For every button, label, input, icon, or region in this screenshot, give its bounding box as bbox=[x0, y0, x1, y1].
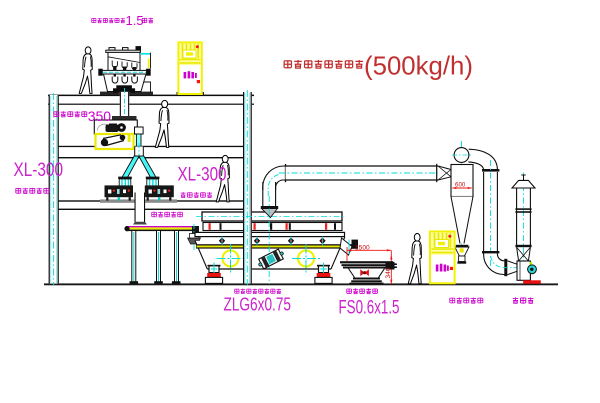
svg-text:1.5: 1.5 bbox=[126, 13, 144, 28]
svg-text:XL-300: XL-300 bbox=[178, 165, 227, 186]
svg-text:ZLG6x0.75: ZLG6x0.75 bbox=[224, 294, 292, 315]
svg-text:600: 600 bbox=[455, 182, 466, 189]
svg-text:1500: 1500 bbox=[355, 245, 370, 252]
svg-text:XL-300: XL-300 bbox=[14, 160, 64, 181]
svg-text:350: 350 bbox=[88, 108, 112, 124]
svg-text:FS0.6x1.5: FS0.6x1.5 bbox=[339, 297, 400, 319]
svg-text:(500kg/h): (500kg/h) bbox=[364, 51, 473, 81]
svg-text:340: 340 bbox=[385, 267, 392, 278]
